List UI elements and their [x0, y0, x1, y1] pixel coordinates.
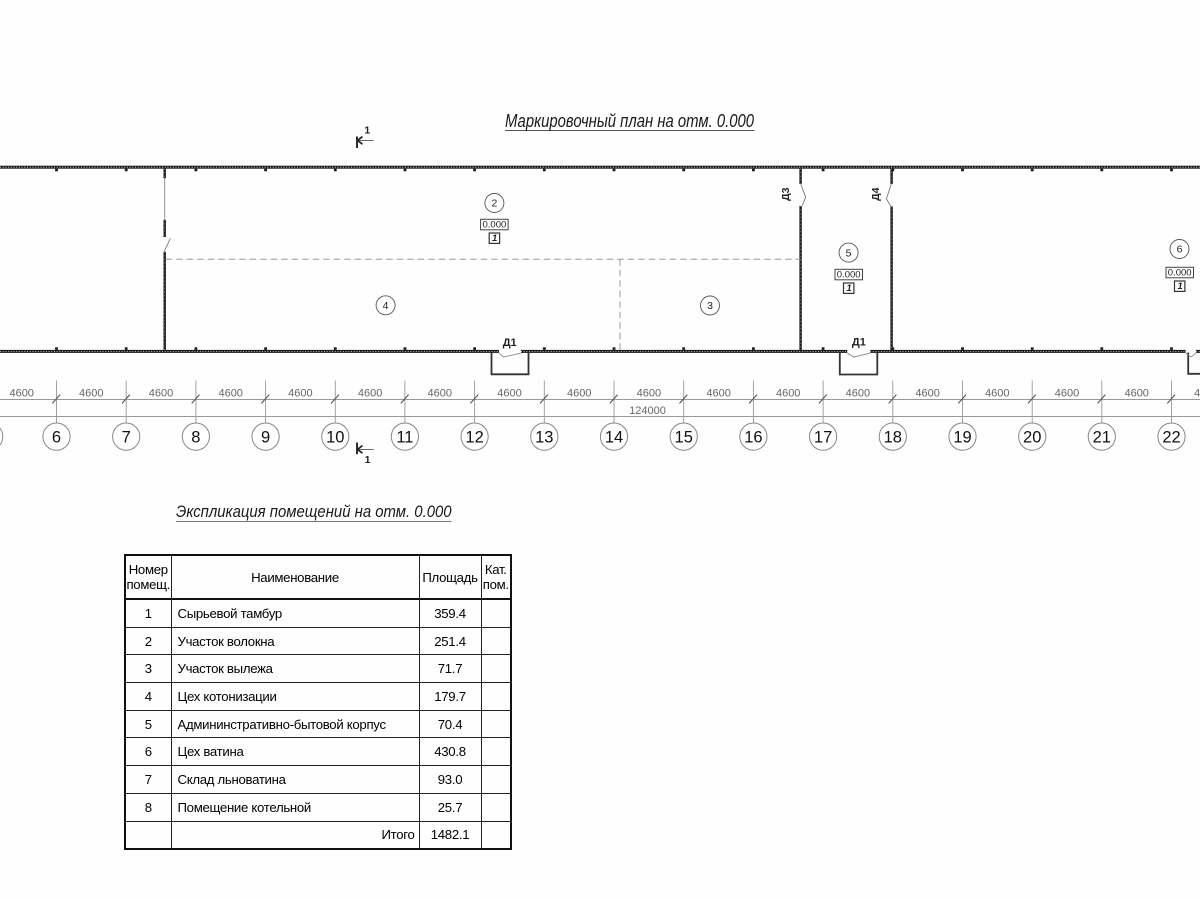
svg-text:6: 6: [1177, 244, 1183, 256]
svg-text:14: 14: [605, 429, 623, 447]
svg-text:6: 6: [52, 429, 61, 447]
svg-text:4600: 4600: [915, 388, 939, 400]
svg-text:16: 16: [744, 429, 762, 447]
svg-text:17: 17: [814, 429, 832, 447]
svg-text:4600: 4600: [846, 388, 870, 400]
svg-text:4600: 4600: [706, 388, 730, 400]
svg-text:1: 1: [1177, 281, 1182, 292]
svg-text:4600: 4600: [9, 388, 33, 400]
svg-text:19: 19: [953, 429, 971, 447]
svg-text:5: 5: [846, 247, 852, 259]
svg-text:12: 12: [465, 429, 483, 447]
svg-text:4600: 4600: [985, 388, 1009, 400]
svg-text:21: 21: [1093, 429, 1111, 447]
svg-text:4600: 4600: [218, 388, 242, 400]
svg-text:15: 15: [675, 429, 693, 447]
svg-text:18: 18: [884, 429, 902, 447]
svg-text:4600: 4600: [1194, 388, 1200, 400]
svg-text:22: 22: [1162, 429, 1180, 447]
svg-text:1: 1: [492, 233, 497, 244]
svg-text:13: 13: [535, 429, 553, 447]
svg-text:4600: 4600: [497, 388, 521, 400]
svg-text:3: 3: [707, 300, 713, 312]
svg-text:4600: 4600: [79, 388, 103, 400]
svg-text:4: 4: [383, 300, 389, 312]
svg-text:Д4: Д4: [870, 187, 882, 200]
svg-text:4600: 4600: [776, 388, 800, 400]
svg-text:1: 1: [365, 454, 371, 466]
svg-text:Д1: Д1: [503, 337, 517, 349]
svg-text:9: 9: [261, 429, 270, 447]
svg-text:0.000: 0.000: [837, 270, 861, 281]
svg-text:0.000: 0.000: [483, 220, 507, 231]
svg-text:124000: 124000: [629, 405, 666, 417]
svg-text:20: 20: [1023, 429, 1041, 447]
svg-text:1: 1: [364, 125, 370, 137]
svg-text:4600: 4600: [428, 388, 452, 400]
svg-text:7: 7: [122, 429, 131, 447]
svg-text:4600: 4600: [1055, 388, 1079, 400]
svg-text:4600: 4600: [149, 388, 173, 400]
svg-text:Д3: Д3: [780, 187, 792, 200]
svg-text:4600: 4600: [358, 388, 382, 400]
svg-text:10: 10: [326, 429, 344, 447]
svg-text:2: 2: [491, 198, 497, 210]
svg-text:Д1: Д1: [852, 337, 866, 349]
svg-text:4600: 4600: [637, 388, 661, 400]
svg-text:4600: 4600: [1124, 388, 1148, 400]
svg-text:0.000: 0.000: [1168, 268, 1192, 279]
svg-text:4600: 4600: [567, 388, 591, 400]
svg-text:4600: 4600: [288, 388, 312, 400]
svg-text:11: 11: [396, 429, 413, 447]
svg-text:1: 1: [846, 283, 851, 294]
svg-text:8: 8: [191, 429, 200, 447]
